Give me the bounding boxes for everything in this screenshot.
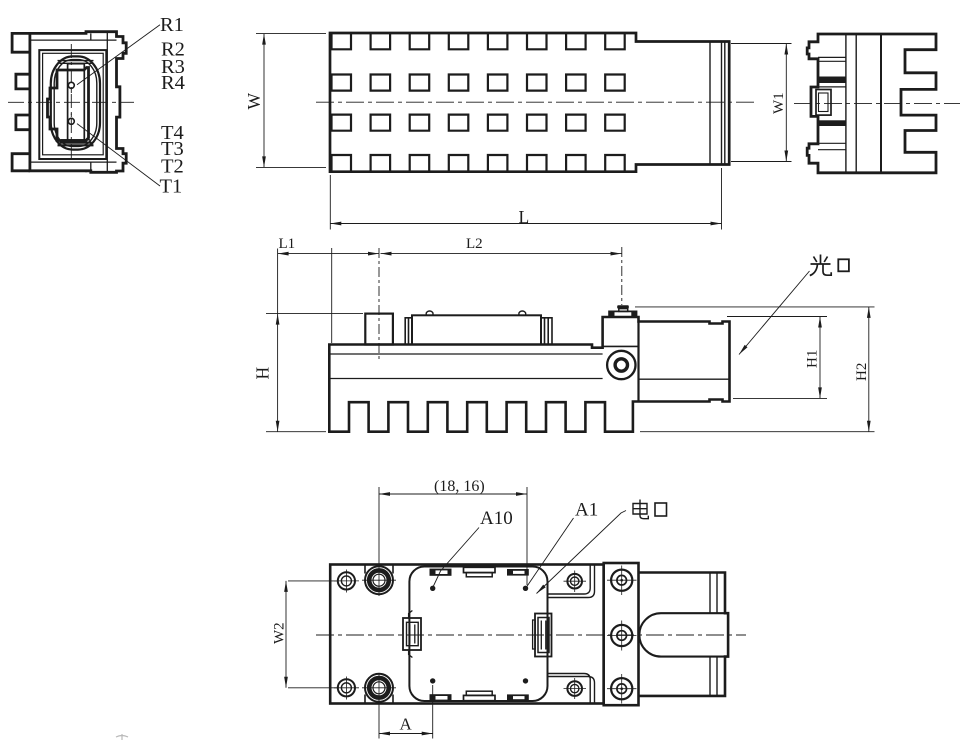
svg-text:A: A bbox=[400, 715, 413, 734]
svg-text:W: W bbox=[244, 93, 264, 110]
svg-text:(18, 16): (18, 16) bbox=[434, 478, 485, 495]
svg-text:H1: H1 bbox=[805, 350, 821, 368]
svg-text:W1: W1 bbox=[771, 92, 787, 114]
svg-text:T2: T2 bbox=[161, 156, 184, 178]
svg-text:L2: L2 bbox=[466, 236, 483, 252]
svg-text:W2: W2 bbox=[272, 622, 288, 644]
svg-text:L: L bbox=[519, 207, 530, 227]
svg-text:R1: R1 bbox=[160, 14, 184, 36]
svg-text:R4: R4 bbox=[161, 72, 185, 94]
svg-text:H2: H2 bbox=[854, 363, 870, 381]
svg-text:A10: A10 bbox=[480, 508, 513, 529]
svg-text:T1: T1 bbox=[160, 176, 183, 198]
svg-text:L1: L1 bbox=[279, 236, 296, 252]
svg-text:A1: A1 bbox=[575, 500, 598, 521]
svg-text:H: H bbox=[253, 367, 273, 380]
